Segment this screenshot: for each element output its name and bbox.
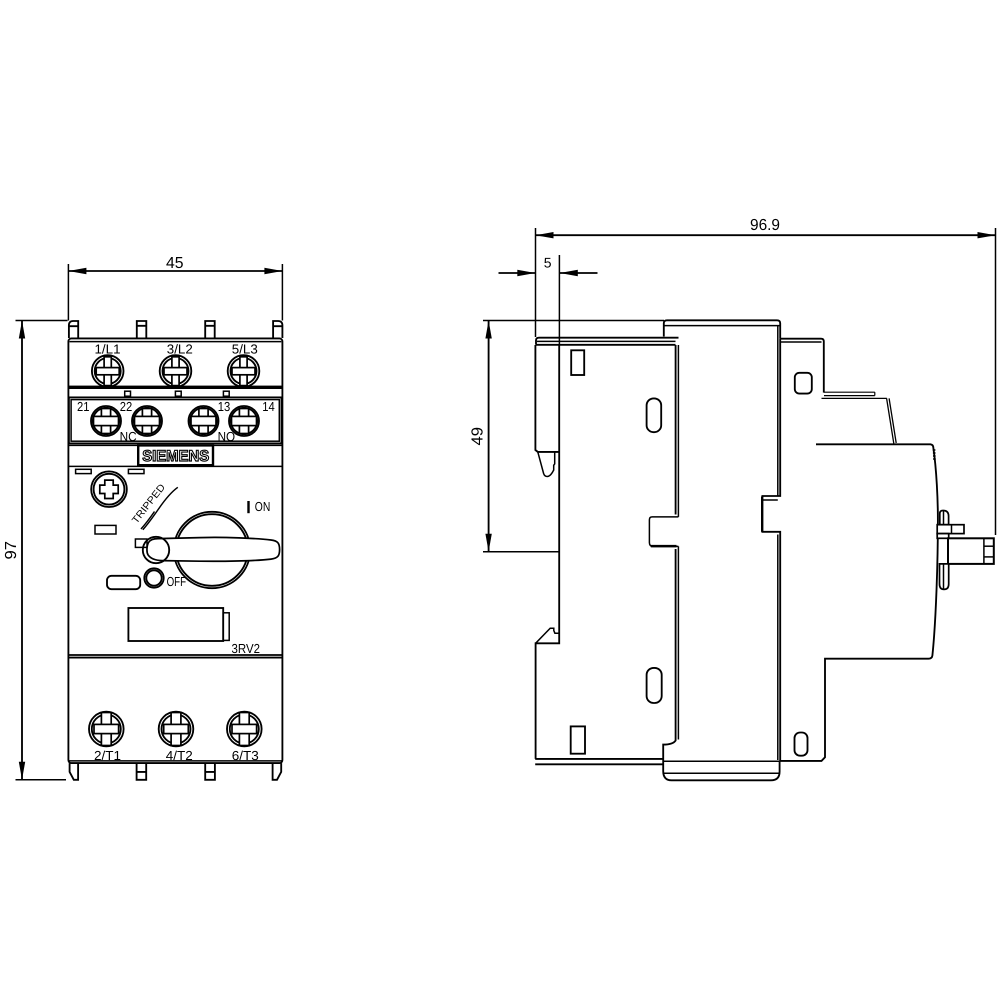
svg-text:3/L2: 3/L2 bbox=[167, 342, 193, 357]
svg-text:13: 13 bbox=[218, 399, 231, 414]
svg-text:22: 22 bbox=[120, 399, 133, 414]
svg-text:1/L1: 1/L1 bbox=[95, 342, 121, 357]
svg-text:49: 49 bbox=[469, 427, 486, 446]
svg-text:SIEMENS: SIEMENS bbox=[142, 448, 209, 465]
svg-text:14: 14 bbox=[262, 399, 275, 414]
svg-text:NC: NC bbox=[120, 429, 137, 444]
svg-text:OFF: OFF bbox=[167, 574, 187, 589]
svg-text:ON: ON bbox=[255, 499, 270, 514]
svg-text:45: 45 bbox=[166, 255, 184, 272]
svg-text:96.9: 96.9 bbox=[750, 217, 780, 234]
svg-text:97: 97 bbox=[3, 541, 20, 560]
svg-text:21: 21 bbox=[77, 399, 90, 414]
svg-text:3RV2: 3RV2 bbox=[232, 641, 261, 656]
svg-text:5: 5 bbox=[544, 255, 552, 271]
svg-text:5/L3: 5/L3 bbox=[232, 342, 258, 357]
